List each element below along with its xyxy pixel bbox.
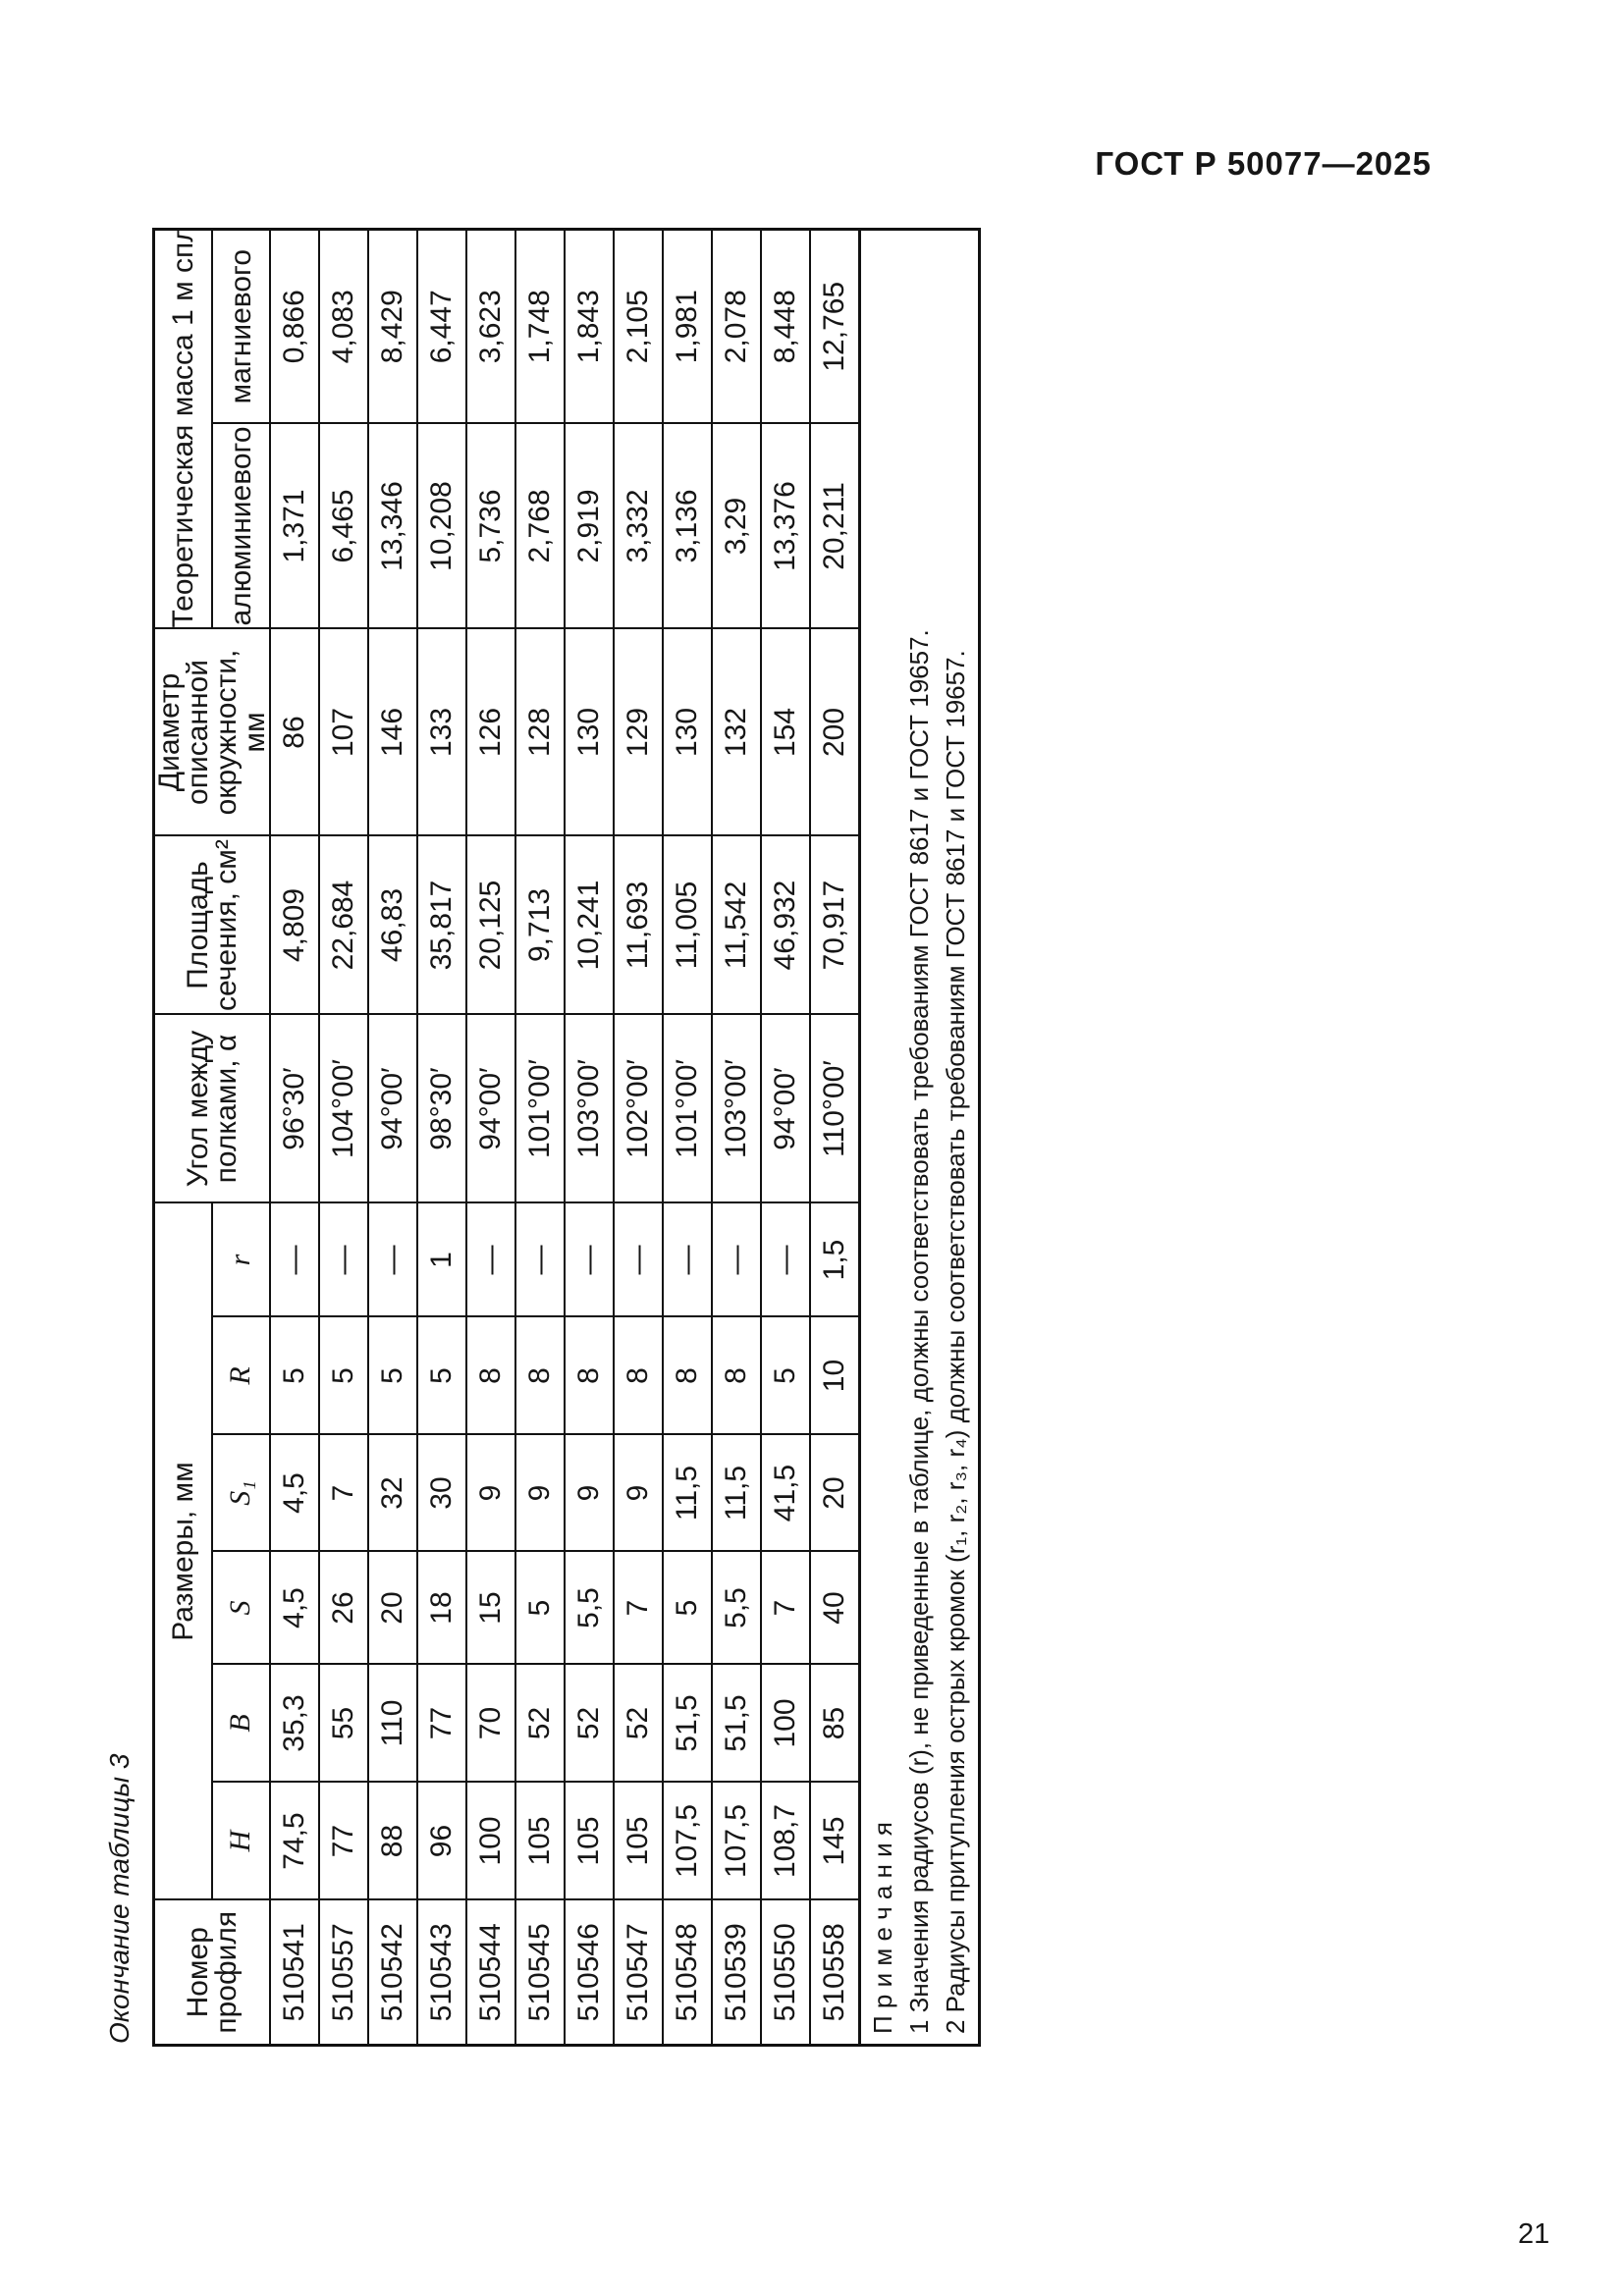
- notes-heading: П р и м е ч а н и я: [865, 231, 901, 2034]
- table-cell: 2,105: [614, 229, 663, 423]
- table-cell: 1,5: [810, 1203, 859, 1317]
- table-cell: 13,376: [761, 424, 810, 629]
- table-cell: 103°00′: [565, 1015, 614, 1203]
- table-cell: 510557: [319, 1900, 368, 2046]
- table-cell: 107: [319, 629, 368, 836]
- table-cell: 5: [368, 1317, 417, 1435]
- table-cell: 5: [761, 1317, 810, 1435]
- header-diameter: Диаметр описанной окружности, мм: [154, 629, 271, 836]
- table-cell: —: [368, 1203, 417, 1317]
- table-cell: 11,5: [663, 1435, 712, 1552]
- table-cell: 510543: [417, 1900, 466, 2046]
- table-cell: 2,078: [712, 229, 761, 423]
- table-cell: 20: [810, 1435, 859, 1552]
- document-page: ГОСТ Р 50077—2025 Окончание таблицы 3 Но…: [0, 0, 1624, 2296]
- table-cell: 5,5: [565, 1552, 614, 1665]
- table-cell: 77: [417, 1665, 466, 1783]
- table-cell: 9: [466, 1435, 515, 1552]
- table-cell: 101°00′: [663, 1015, 712, 1203]
- table-cell: 11,5: [712, 1435, 761, 1552]
- table-cell: 3,136: [663, 424, 712, 629]
- table-cell: 41,5: [761, 1435, 810, 1552]
- table-cell: —: [565, 1203, 614, 1317]
- table-cell: 70: [466, 1665, 515, 1783]
- table-cell: 8: [663, 1317, 712, 1435]
- table-header-row-1: Номер профиля Размеры, мм Угол между пол…: [154, 229, 212, 2045]
- table-cell: 154: [761, 629, 810, 836]
- table-cell: 510546: [565, 1900, 614, 2046]
- table-row: 51054710552798—102°00′11,6931293,3322,10…: [614, 229, 663, 2045]
- table-cell: 130: [663, 629, 712, 836]
- table-cell: 4,809: [270, 836, 319, 1015]
- table-cell: 5: [270, 1317, 319, 1435]
- table-cell: 52: [565, 1665, 614, 1783]
- table-cell: 74,5: [270, 1783, 319, 1900]
- table-cell: 510547: [614, 1900, 663, 2046]
- table-cell: 145: [810, 1783, 859, 1900]
- table-cell: 1,843: [565, 229, 614, 423]
- table-cell: 1,371: [270, 424, 319, 629]
- table-row: 51055777552675—104°00′22,6841076,4654,08…: [319, 229, 368, 2045]
- table-cell: 7: [761, 1552, 810, 1665]
- table-cell: 107,5: [663, 1783, 712, 1900]
- table-cell: 7: [319, 1435, 368, 1552]
- table-cell: 4,5: [270, 1435, 319, 1552]
- table-cell: 98°30′: [417, 1015, 466, 1203]
- table-cell: 133: [417, 629, 466, 836]
- table-cell: 88: [368, 1783, 417, 1900]
- table-cell: 510550: [761, 1900, 810, 2046]
- header-dim-s: S: [212, 1552, 270, 1665]
- table-cell: 104°00′: [319, 1015, 368, 1203]
- table-cell: 96°30′: [270, 1015, 319, 1203]
- header-dim-r-small: r: [212, 1203, 270, 1317]
- header-mass-group: Теоретическая масса 1 м сплава, кг: [154, 229, 212, 628]
- table-row: 510546105525,598—103°00′10,2411302,9191,…: [565, 229, 614, 2045]
- header-dimensions-group: Размеры, мм: [154, 1203, 212, 1900]
- note-1: 1 Значения радиусов (r), не приведенные …: [901, 231, 938, 2034]
- table-cell: 86: [270, 629, 319, 836]
- table-cell: 51,5: [663, 1665, 712, 1783]
- table-cell: 13,346: [368, 424, 417, 629]
- table-cell: 7: [614, 1552, 663, 1665]
- table-row: 510544100701598—94°00′20,1251265,7363,62…: [466, 229, 515, 2045]
- header-mass-aluminum: алюминиевого: [212, 424, 270, 629]
- table-cell: 30: [417, 1435, 466, 1552]
- table-cell: 129: [614, 629, 663, 836]
- table-cell: 3,332: [614, 424, 663, 629]
- table-cell: 26: [319, 1552, 368, 1665]
- table-cell: 11,542: [712, 836, 761, 1015]
- table-cell: 10,208: [417, 424, 466, 629]
- rotated-table-container: Номер профиля Размеры, мм Угол между пол…: [152, 231, 962, 2047]
- table-cell: 52: [515, 1665, 565, 1783]
- table-cell: 12,765: [810, 229, 859, 423]
- table-cell: 5: [417, 1317, 466, 1435]
- table-cell: 94°00′: [761, 1015, 810, 1203]
- table-cell: 2,919: [565, 424, 614, 629]
- table-cell: 20: [368, 1552, 417, 1665]
- table-cell: 20,211: [810, 424, 859, 629]
- table-cell: 126: [466, 629, 515, 836]
- table-cell: 8: [565, 1317, 614, 1435]
- table-cell: 8: [712, 1317, 761, 1435]
- table-cell: —: [466, 1203, 515, 1317]
- table-notes-row: П р и м е ч а н и я 1 Значения радиусов …: [859, 229, 979, 2045]
- table-cell: 2,768: [515, 424, 565, 629]
- table-row: 510548107,551,5511,58—101°00′11,0051303,…: [663, 229, 712, 2045]
- header-area: Площадь сечения, см²: [154, 836, 271, 1015]
- table-cell: 200: [810, 629, 859, 836]
- table-cell: —: [515, 1203, 565, 1317]
- table-cell: 46,83: [368, 836, 417, 1015]
- table-cell: 70,917: [810, 836, 859, 1015]
- table-row: 510558145854020101,5110°00′70,91720020,2…: [810, 229, 859, 2045]
- table-cell: 52: [614, 1665, 663, 1783]
- document-header: ГОСТ Р 50077—2025: [1095, 145, 1432, 183]
- table-cell: 101°00′: [515, 1015, 565, 1203]
- table-cell: 510545: [515, 1900, 565, 2046]
- table-cell: 8: [614, 1317, 663, 1435]
- table-cell: 85: [810, 1665, 859, 1783]
- table-cell: 35,817: [417, 836, 466, 1015]
- table-cell: 5: [515, 1552, 565, 1665]
- table-cell: 132: [712, 629, 761, 836]
- table-row: 510539107,551,55,511,58—103°00′11,542132…: [712, 229, 761, 2045]
- table-cell: 1,981: [663, 229, 712, 423]
- table-cell: 8,429: [368, 229, 417, 423]
- table-cell: 5,736: [466, 424, 515, 629]
- table-cell: 1: [417, 1203, 466, 1317]
- table-cell: 11,693: [614, 836, 663, 1015]
- table-cell: 96: [417, 1783, 466, 1900]
- table-cell: 9: [515, 1435, 565, 1552]
- table-cell: 102°00′: [614, 1015, 663, 1203]
- page-number: 21: [1518, 2218, 1549, 2251]
- header-dim-b: B: [212, 1665, 270, 1783]
- header-dim-h: H: [212, 1783, 270, 1900]
- table-cell: 105: [614, 1783, 663, 1900]
- table-cell: 94°00′: [368, 1015, 417, 1203]
- table-cell: 108,7: [761, 1783, 810, 1900]
- table-cell: —: [270, 1203, 319, 1317]
- table-cell: 10,241: [565, 836, 614, 1015]
- table-row: 51054174,535,34,54,55—96°30′4,809861,371…: [270, 229, 319, 2045]
- table-cell: —: [712, 1203, 761, 1317]
- table-cell: 3,623: [466, 229, 515, 423]
- table-cell: 510548: [663, 1900, 712, 2046]
- table-cell: 128: [515, 629, 565, 836]
- table-cell: 18: [417, 1552, 466, 1665]
- table-cell: 5,5: [712, 1552, 761, 1665]
- table-cell: 22,684: [319, 836, 368, 1015]
- table-cell: 110°00′: [810, 1015, 859, 1203]
- table-cell: 8: [466, 1317, 515, 1435]
- table-cell: 32: [368, 1435, 417, 1552]
- table-cell: 35,3: [270, 1665, 319, 1783]
- table-cell: 6,447: [417, 229, 466, 423]
- table-cell: 6,465: [319, 424, 368, 629]
- table-cell: 8: [515, 1317, 565, 1435]
- table-cell: 46,932: [761, 836, 810, 1015]
- table-cell: 4,5: [270, 1552, 319, 1665]
- header-profile: Номер профиля: [154, 1900, 271, 2046]
- table-cell: 3,29: [712, 424, 761, 629]
- table-cell: —: [761, 1203, 810, 1317]
- table-cell: 20,125: [466, 836, 515, 1015]
- header-mass-magnesium: магниевого: [212, 229, 270, 423]
- header-dim-r-big: R: [212, 1317, 270, 1435]
- table-row: 51054510552598—101°00′9,7131282,7681,748: [515, 229, 565, 2045]
- table-cell: 130: [565, 629, 614, 836]
- table-cell: 100: [761, 1665, 810, 1783]
- table-cell: 146: [368, 629, 417, 836]
- table-cell: 94°00′: [466, 1015, 515, 1203]
- table-cell: 105: [515, 1783, 565, 1900]
- header-dim-s1: S₁: [212, 1435, 270, 1552]
- table-cell: 1,748: [515, 229, 565, 423]
- table-cell: 105: [565, 1783, 614, 1900]
- table-cell: 4,083: [319, 229, 368, 423]
- table-cell: 100: [466, 1783, 515, 1900]
- table-cell: 107,5: [712, 1783, 761, 1900]
- table-cell: 510558: [810, 1900, 859, 2046]
- table-cell: 5: [663, 1552, 712, 1665]
- header-angle: Угол между полками, α: [154, 1015, 271, 1203]
- table-caption: Окончание таблицы 3: [104, 1769, 147, 2044]
- table-row: 510543967718305198°30′35,81713310,2086,4…: [417, 229, 466, 2045]
- table-cell: 9: [614, 1435, 663, 1552]
- note-2: 2 Радиусы притупления острых кромок (r₁,…: [938, 231, 974, 2034]
- table-cell: 510541: [270, 1900, 319, 2046]
- table-cell: 9,713: [515, 836, 565, 1015]
- table-cell: 40: [810, 1552, 859, 1665]
- table-cell: 11,005: [663, 836, 712, 1015]
- table-cell: 0,866: [270, 229, 319, 423]
- table-cell: 5: [319, 1317, 368, 1435]
- table-cell: 8,448: [761, 229, 810, 423]
- table-cell: 110: [368, 1665, 417, 1783]
- table-notes-cell: П р и м е ч а н и я 1 Значения радиусов …: [859, 229, 979, 2045]
- table-cell: 103°00′: [712, 1015, 761, 1203]
- table-cell: 510542: [368, 1900, 417, 2046]
- table-row: 510550108,7100741,55—94°00′46,93215413,3…: [761, 229, 810, 2045]
- table-cell: 510544: [466, 1900, 515, 2046]
- table-row: 5105428811020325—94°00′46,8314613,3468,4…: [368, 229, 417, 2045]
- table-cell: 77: [319, 1783, 368, 1900]
- table-cell: 51,5: [712, 1665, 761, 1783]
- table-cell: 55: [319, 1665, 368, 1783]
- table-cell: 510539: [712, 1900, 761, 2046]
- table-cell: 15: [466, 1552, 515, 1665]
- table-cell: —: [319, 1203, 368, 1317]
- table-cell: —: [663, 1203, 712, 1317]
- table-cell: —: [614, 1203, 663, 1317]
- table-cell: 9: [565, 1435, 614, 1552]
- table-cell: 10: [810, 1317, 859, 1435]
- profiles-table: Номер профиля Размеры, мм Угол между пол…: [152, 228, 981, 2047]
